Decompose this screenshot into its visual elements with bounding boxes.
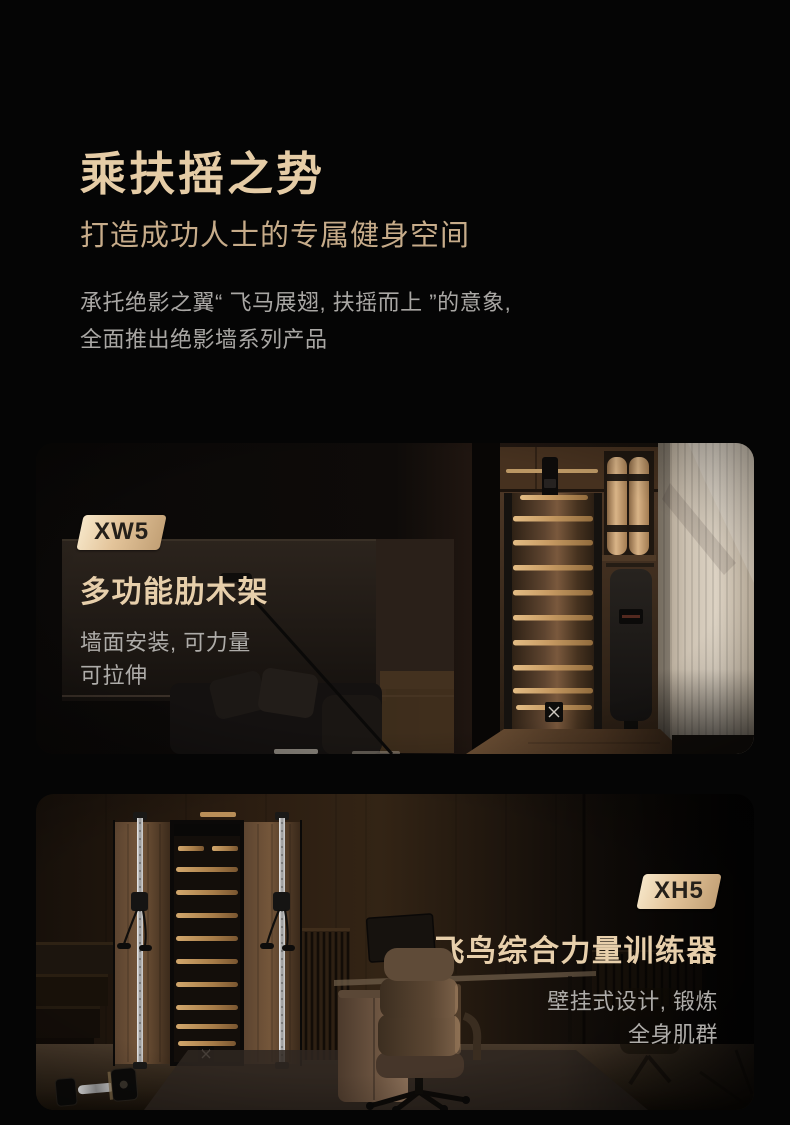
page-description-line2: 全面推出绝影墙系列产品 [80, 327, 328, 352]
product-description-line2: 可拉伸 [80, 663, 148, 688]
product-description-line1: 壁挂式设计, 锻炼 [547, 989, 718, 1014]
product-description-line1: 墙面安装, 可力量 [80, 630, 251, 655]
page-description: 承托绝影之翼“ 飞马展翅, 扶摇而上 ”的意象, 全面推出绝影墙系列产品 [80, 284, 511, 358]
page-title: 乘扶摇之势 [80, 138, 325, 204]
product-description: 壁挂式设计, 锻炼 全身肌群 [547, 985, 718, 1051]
product-description-line2: 全身肌群 [628, 1022, 718, 1047]
product-card-xw5: XW5 多功能肋木架 墙面安装, 可力量 可拉伸 [36, 443, 754, 754]
model-badge-label: XW5 [94, 518, 149, 546]
model-badge-xw5: XW5 [76, 515, 166, 550]
page-subtitle: 打造成功人士的专属健身空间 [80, 212, 470, 254]
product-title: 多功能肋木架 [80, 567, 269, 611]
model-badge-xh5: XH5 [637, 874, 722, 909]
product-title: 飞鸟综合力量训练器 [435, 926, 719, 970]
product-card-xh5: XH5 飞鸟综合力量训练器 壁挂式设计, 锻炼 全身肌群 [36, 794, 754, 1110]
card-text-xw5: XW5 多功能肋木架 墙面安装, 可力量 可拉伸 [80, 515, 269, 692]
card-text-xh5: XH5 飞鸟综合力量训练器 壁挂式设计, 锻炼 全身肌群 [435, 874, 719, 1051]
promo-page: 乘扶摇之势 打造成功人士的专属健身空间 承托绝影之翼“ 飞马展翅, 扶摇而上 ”… [0, 0, 790, 1125]
page-description-line1: 承托绝影之翼“ 飞马展翅, 扶摇而上 ”的意象, [80, 290, 511, 315]
model-badge-label: XH5 [654, 877, 704, 905]
product-description: 墙面安装, 可力量 可拉伸 [80, 626, 269, 692]
